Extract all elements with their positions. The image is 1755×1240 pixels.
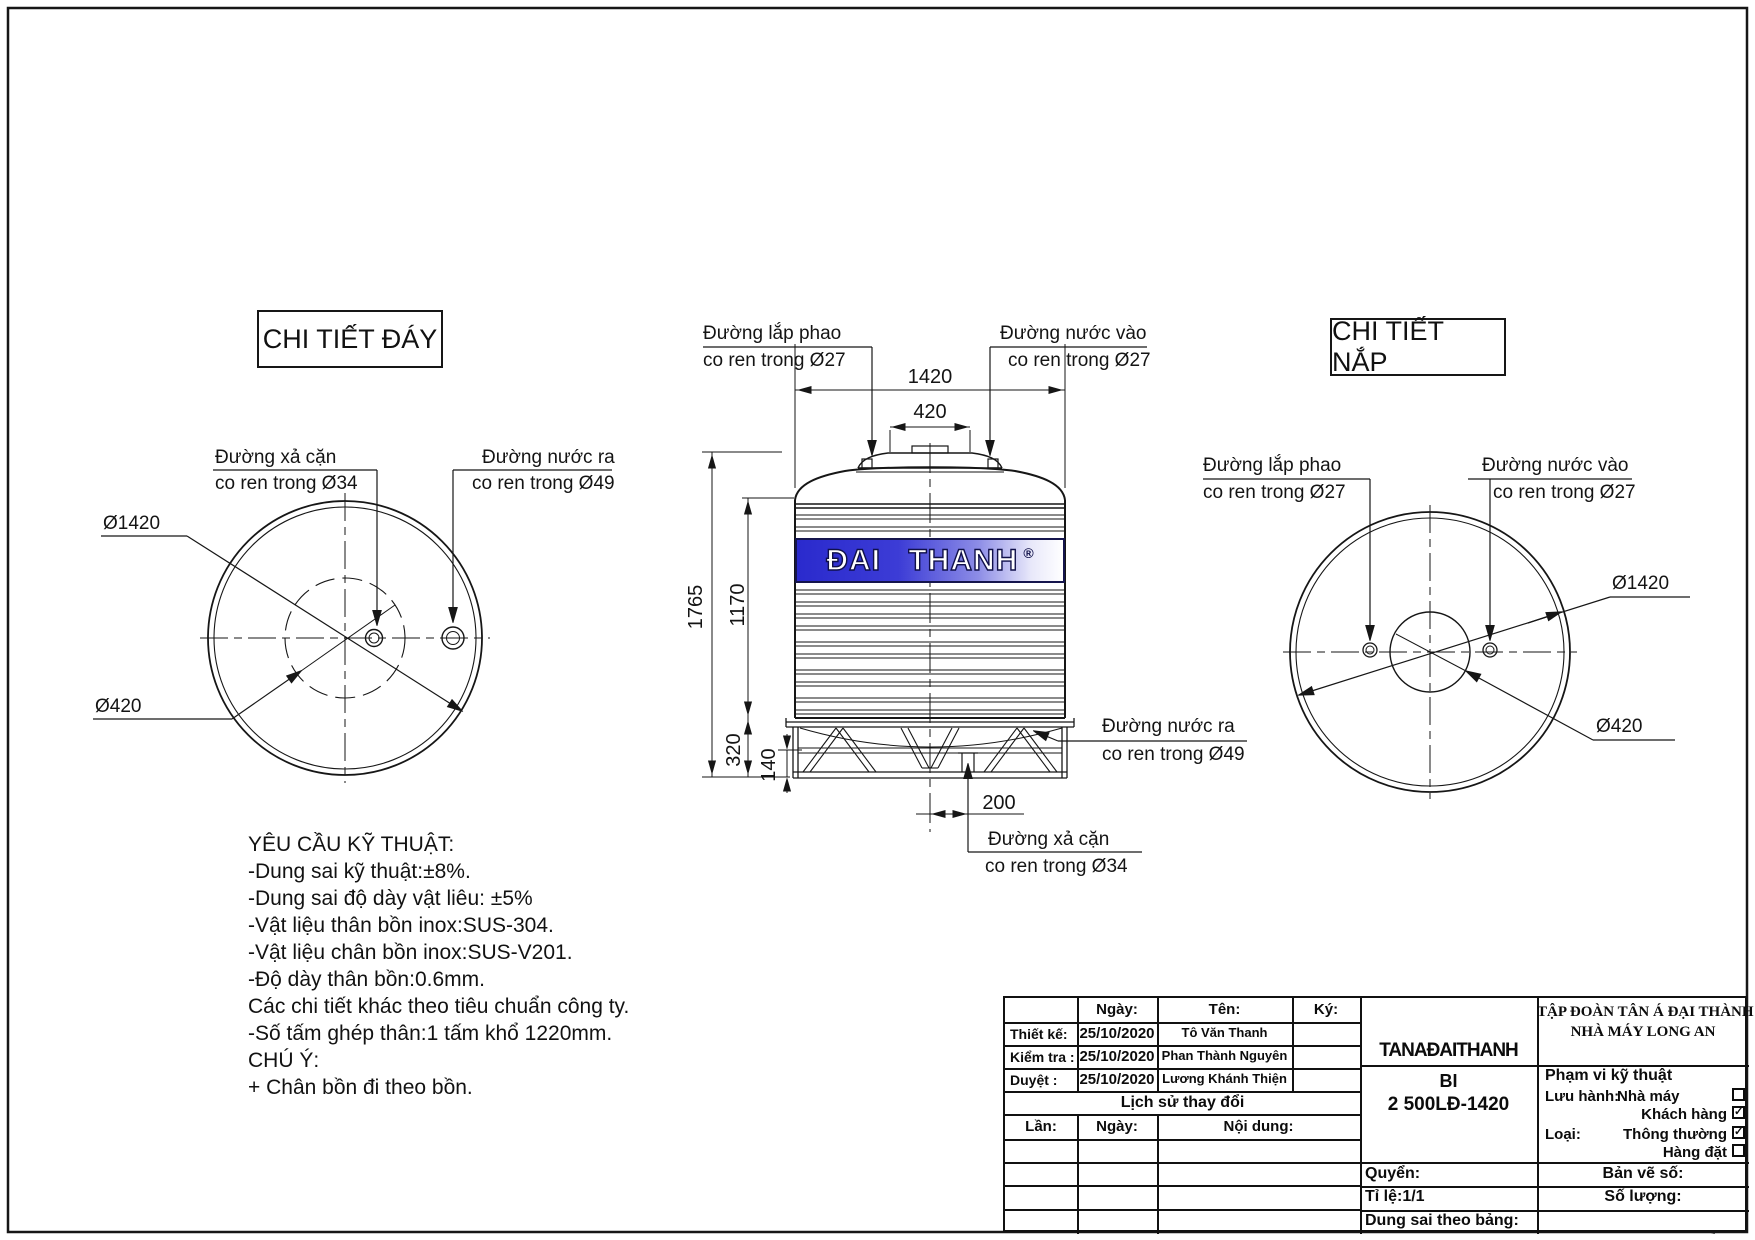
field-luu-hanh: Lưu hành: <box>1545 1088 1619 1106</box>
lid-detail-title: CHI TIẾT NẮP <box>1332 316 1504 378</box>
note-line: + Chân bồn đi theo bồn. <box>248 1074 629 1101</box>
approve-name: Lương Khánh Thiện <box>1157 1070 1292 1088</box>
lid-detail-title-box: CHI TIẾT NẮP <box>1330 318 1506 376</box>
side-inlet-label-2: co ren trong Ø27 <box>1008 350 1151 371</box>
lid-inlet-label-2: co ren trong Ø27 <box>1493 482 1636 503</box>
col-header-date: Ngày: <box>1077 1001 1157 1019</box>
lid-inlet-label-1: Đường nước vào <box>1482 455 1628 476</box>
note-line: CHÚ Ý: <box>248 1047 629 1074</box>
check-name: Phan Thành Nguyên <box>1157 1047 1292 1065</box>
history-header-ngay: Ngày: <box>1077 1118 1157 1136</box>
side-float-label-1: Đường lắp phao <box>703 323 841 344</box>
note-line: YÊU CẦU KỸ THUẬT: <box>248 831 629 858</box>
bottom-dia-outer-label: Ø1420 <box>103 513 160 534</box>
side-outlet-label-1: Đường nước ra <box>1102 716 1235 737</box>
side-view <box>702 344 1247 852</box>
scope-title: Phạm vi kỹ thuật <box>1545 1067 1672 1085</box>
note-line: -Dung sai độ dày vật liêu: ±5% <box>248 885 629 912</box>
note-line: -Số tấm ghép thân:1 tấm khổ 1220mm. <box>248 1020 629 1047</box>
side-inlet-label-1: Đường nước vào <box>1000 323 1146 344</box>
history-header-lan: Lần: <box>1005 1118 1077 1136</box>
tank-brand-text: ĐAI THANH <box>826 544 1018 578</box>
note-line: -Độ dày thân bồn:0.6mm. <box>248 966 629 993</box>
lid-dia-inner-label: Ø420 <box>1596 716 1642 737</box>
company-name-line1: TẬP ĐOÀN TÂN Á ĐẠI THÀNH <box>1537 1003 1749 1021</box>
company-name-line2: NHÀ MÁY LONG AN <box>1537 1023 1749 1041</box>
checkbox-nha-may[interactable] <box>1732 1088 1745 1101</box>
side-outlet-label-2: co ren trong Ø49 <box>1102 744 1245 765</box>
model-line2: 2 500LĐ-1420 <box>1360 1096 1537 1114</box>
side-drain-label-1: Đường xả cặn <box>988 829 1109 850</box>
history-header-noidung: Nội dung: <box>1157 1118 1360 1136</box>
field-ti-le: Tỉ lệ:1/1 <box>1365 1188 1425 1206</box>
note-line: -Vật liệu chân bồn inox:SUS-V201. <box>248 939 629 966</box>
side-float-label-2: co ren trong Ø27 <box>703 350 846 371</box>
design-date: 25/10/2020 <box>1077 1025 1157 1043</box>
row-label-approve: Duyệt : <box>1010 1071 1057 1089</box>
registered-mark-icon: ® <box>1023 545 1033 561</box>
technical-drawing-page: CHI TIẾT ĐÁY CHI TIẾT NẮP Đường xả cặn c… <box>0 0 1755 1240</box>
dim-drain-offset: 200 <box>969 792 1029 814</box>
lid-float-label-2: co ren trong Ø27 <box>1203 482 1346 503</box>
lid-dia-outer-label: Ø1420 <box>1612 573 1669 594</box>
field-thong-thuong: Thông thường <box>1537 1126 1727 1144</box>
col-header-sign: Ký: <box>1292 1001 1360 1019</box>
bottom-detail-title: CHI TIẾT ĐÁY <box>263 324 438 355</box>
check-date: 25/10/2020 <box>1077 1048 1157 1066</box>
approve-date: 25/10/2020 <box>1077 1071 1157 1089</box>
note-line: -Dung sai kỹ thuật:±8%. <box>248 858 629 885</box>
row-label-check: Kiểm tra : <box>1010 1048 1075 1066</box>
lid-float-label-1: Đường lắp phao <box>1203 455 1341 476</box>
bottom-drain-label-1: Đường xả cặn <box>215 447 336 468</box>
design-name: Tô Văn Thanh <box>1157 1024 1292 1042</box>
field-nha-may: Nhà máy <box>1617 1088 1680 1106</box>
dim-cap: 420 <box>895 401 965 423</box>
field-khach-hang: Khách hàng <box>1537 1106 1727 1124</box>
field-ban-ve-so: Bản vẽ số: <box>1537 1165 1749 1183</box>
row-label-design: Thiết kế: <box>1010 1025 1068 1043</box>
field-so-luong: Số lượng: <box>1537 1188 1749 1206</box>
title-block: Ngày: Tên: Ký: Thiết kế: 25/10/2020 Tô V… <box>1003 996 1747 1232</box>
dim-total-height: 1765 <box>685 567 707 647</box>
dim-stand-height: 320 <box>723 710 745 790</box>
dim-width: 1420 <box>870 366 990 388</box>
col-header-name: Tên: <box>1157 1001 1292 1019</box>
bottom-drain-label-2: co ren trong Ø34 <box>215 473 358 494</box>
model-line1: BI <box>1360 1072 1537 1090</box>
brand-wordmark: TANAĐAITHANH <box>1360 1042 1537 1060</box>
field-dung-sai: Dung sai theo bảng: <box>1365 1212 1519 1230</box>
dim-body-height: 1170 <box>727 565 749 645</box>
history-title: Lịch sử thay đổi <box>1005 1094 1360 1112</box>
field-quyen: Quyển: <box>1365 1165 1420 1183</box>
field-hang-dat: Hàng đặt <box>1537 1144 1727 1162</box>
bottom-outlet-label-1: Đường nước ra <box>482 447 615 468</box>
bottom-detail-title-box: CHI TIẾT ĐÁY <box>257 310 443 368</box>
checkbox-thong-thuong[interactable]: ✓ <box>1732 1126 1745 1139</box>
technical-notes: YÊU CẦU KỸ THUẬT: -Dung sai kỹ thuật:±8%… <box>248 831 629 1101</box>
lid-detail-view <box>1203 479 1690 799</box>
note-line: -Vật liệu thân bồn inox:SUS-304. <box>248 912 629 939</box>
checkbox-khach-hang[interactable]: ✓ <box>1732 1106 1745 1119</box>
checkbox-hang-dat[interactable] <box>1732 1144 1745 1157</box>
bottom-dia-inner-label: Ø420 <box>95 696 141 717</box>
dim-stand-lower: 140 <box>758 725 780 805</box>
side-drain-label-2: co ren trong Ø34 <box>985 856 1128 877</box>
tank-brand-band: ĐAI THANH ® <box>795 538 1065 583</box>
bottom-outlet-label-2: co ren trong Ø49 <box>472 473 615 494</box>
note-line: Các chi tiết khác theo tiêu chuẩn công t… <box>248 993 629 1020</box>
bottom-detail-view <box>93 470 612 783</box>
